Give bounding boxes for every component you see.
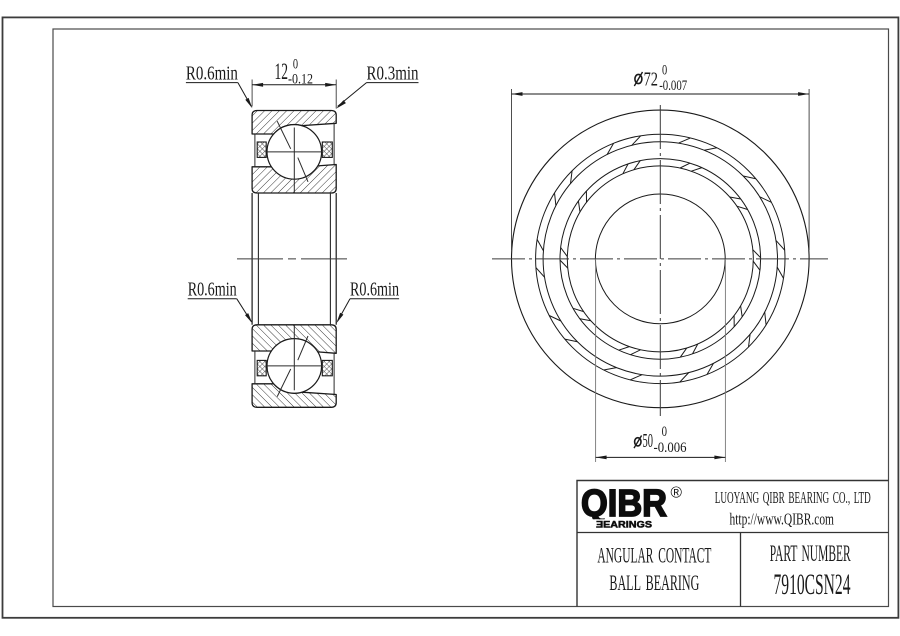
svg-text:-0.007: -0.007 — [659, 78, 687, 94]
svg-text:®: ® — [671, 485, 683, 502]
svg-text:-0.12: -0.12 — [288, 71, 313, 87]
svg-text:R0.3min: R0.3min — [367, 62, 419, 84]
svg-text:12: 12 — [275, 59, 289, 85]
svg-text:-0.006: -0.006 — [654, 440, 687, 456]
svg-text:BALL BEARING: BALL BEARING — [609, 570, 699, 595]
svg-text:ƎEARINGS: ƎEARINGS — [596, 520, 652, 531]
svg-text:0: 0 — [293, 57, 298, 73]
svg-text:0: 0 — [662, 62, 667, 78]
svg-text:50: 50 — [643, 430, 654, 452]
svg-text:0: 0 — [662, 424, 667, 440]
svg-text:R0.6min: R0.6min — [188, 278, 237, 300]
svg-text:PART NUMBER: PART NUMBER — [770, 541, 851, 566]
svg-text:ANGULAR CONTACT: ANGULAR CONTACT — [597, 543, 711, 568]
svg-text:7910CSN24: 7910CSN24 — [774, 568, 851, 601]
svg-text:LUOYANG QIBR BEARING CO., LTD: LUOYANG QIBR BEARING CO., LTD — [715, 488, 871, 507]
svg-text:http://www.QIBR.com: http://www.QIBR.com — [730, 510, 835, 529]
svg-text:72: 72 — [644, 68, 658, 90]
svg-text:R0.6min: R0.6min — [350, 278, 399, 300]
svg-text:R0.6min: R0.6min — [186, 62, 238, 84]
